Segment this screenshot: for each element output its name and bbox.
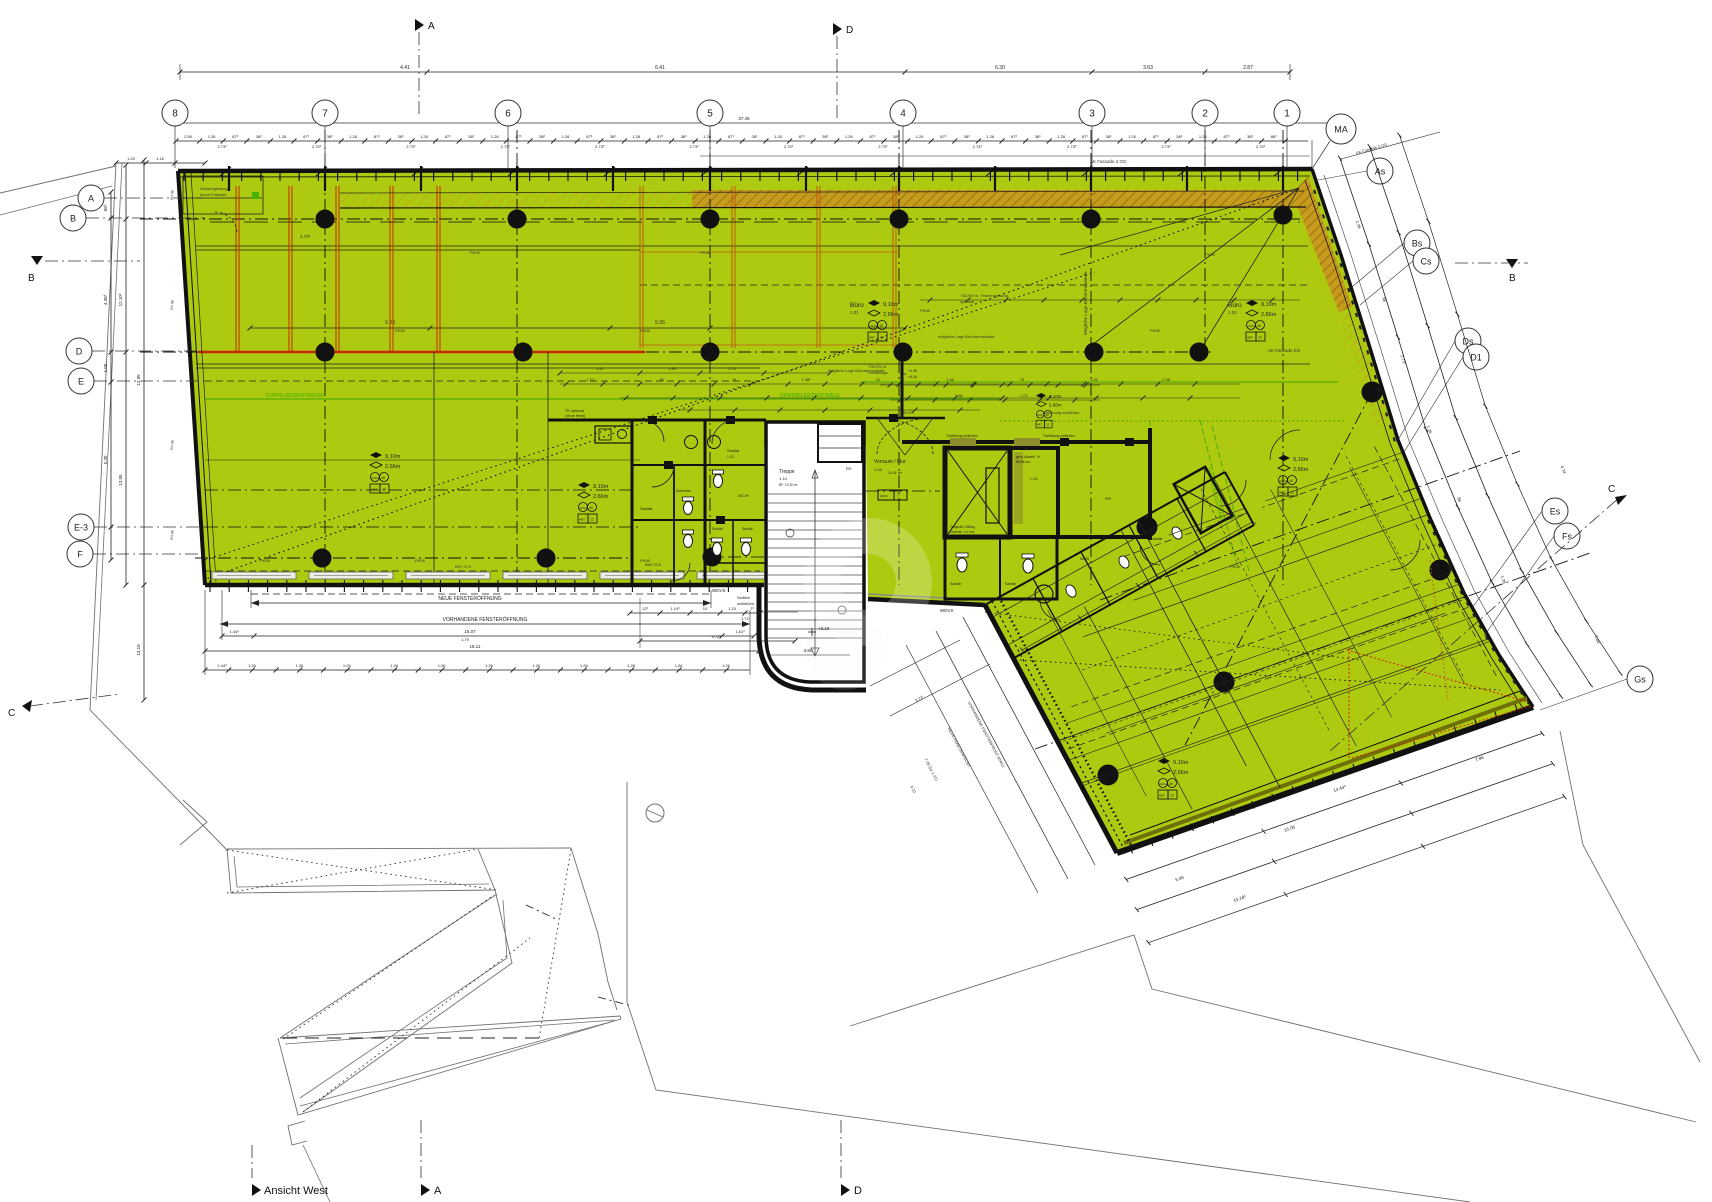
svg-text:86/36 cm: 86/36 cm: [1016, 460, 1030, 464]
svg-text:Ansicht West: Ansicht West: [264, 1185, 328, 1197]
svg-text:RS: RS: [846, 466, 852, 471]
svg-text:mögliche Lage Bürotrennwände: mögliche Lage Bürotrennwände: [938, 334, 995, 339]
svg-text:40: 40: [879, 324, 883, 328]
svg-text:87³: 87³: [445, 134, 451, 139]
svg-text:38³: 38³: [964, 134, 970, 139]
svg-text:Cs: Cs: [1421, 257, 1432, 267]
svg-text:ACKG: ACKG: [1279, 479, 1288, 483]
svg-text:T30-RS m. Festverglasung: T30-RS m. Festverglasung: [960, 293, 1008, 298]
svg-text:1.26: 1.26: [343, 663, 352, 668]
svg-text:12: 12: [590, 518, 594, 522]
svg-text:1.26: 1.26: [1199, 134, 1208, 139]
svg-text:D: D: [854, 1185, 862, 1197]
svg-text:WDVS: WDVS: [712, 588, 726, 593]
svg-text:12.10³: 12.10³: [118, 293, 123, 306]
svg-text:1.26: 1.26: [390, 663, 399, 668]
svg-text:PK08: PK08: [470, 250, 481, 255]
svg-text:40: 40: [589, 506, 593, 510]
svg-text:70: 70: [1020, 378, 1024, 382]
svg-text:1.73³: 1.73³: [1020, 394, 1029, 398]
svg-text:2,66m: 2,66m: [1293, 467, 1309, 473]
svg-text:1.02: 1.02: [1090, 378, 1097, 382]
svg-text:87³: 87³: [586, 134, 592, 139]
svg-text:87³: 87³: [728, 134, 734, 139]
svg-text:87³: 87³: [303, 134, 309, 139]
svg-text:1.44³: 1.44³: [229, 629, 239, 634]
svg-text:2.87: 2.87: [1243, 65, 1253, 71]
svg-text:3.63: 3.63: [1143, 65, 1153, 71]
svg-text:F: F: [77, 550, 83, 560]
svg-text:Sanitär: Sanitär: [1040, 596, 1053, 601]
svg-text:2.73³: 2.73³: [312, 144, 322, 149]
svg-text:4: 4: [900, 109, 906, 120]
svg-text:2,66m: 2,66m: [385, 464, 401, 470]
svg-text:12: 12: [382, 488, 386, 492]
svg-text:1.72: 1.72: [741, 616, 750, 621]
svg-text:T30-RS m.: T30-RS m.: [868, 364, 887, 369]
svg-text:+2.19: +2.19: [818, 626, 830, 631]
svg-text:87³: 87³: [232, 134, 238, 139]
svg-text:10: 10: [703, 606, 708, 611]
svg-text:12: 12: [1258, 336, 1262, 340]
svg-text:TK optional: TK optional: [565, 409, 584, 413]
svg-text:12³: 12³: [642, 606, 648, 611]
svg-text:3: 3: [1089, 109, 1095, 120]
svg-text:1.26: 1.26: [1057, 134, 1066, 139]
svg-text:1.15: 1.15: [728, 606, 737, 611]
svg-text:Sanitär: Sanitär: [950, 582, 962, 586]
svg-text:Schleuse: Schleuse: [676, 489, 691, 493]
svg-text:9,10m: 9,10m: [1261, 302, 1277, 308]
svg-text:(ohne Herd): (ohne Herd): [565, 414, 586, 418]
svg-text:1.26: 1.26: [491, 134, 500, 139]
svg-text:38³: 38³: [539, 134, 545, 139]
svg-text:Gs: Gs: [1634, 675, 1646, 685]
svg-text:86³: 86³: [1271, 134, 1277, 139]
svg-text:ACKG: ACKG: [1159, 782, 1168, 786]
svg-text:21: 21: [876, 378, 880, 382]
svg-text:AK Fassade 2.OG: AK Fassade 2.OG: [1090, 159, 1127, 164]
svg-text:15.07: 15.07: [464, 629, 476, 634]
svg-text:1.14: 1.14: [779, 476, 788, 481]
svg-text:1.26: 1.26: [296, 663, 305, 668]
svg-text:2.73³: 2.73³: [689, 144, 699, 149]
svg-text:1.03: 1.03: [874, 467, 883, 472]
svg-text:7: 7: [897, 494, 899, 498]
svg-text:PH 96: PH 96: [170, 190, 175, 200]
svg-text:90: 90: [660, 378, 664, 382]
svg-text:40: 40: [381, 476, 385, 480]
svg-text:schließen: schließen: [737, 601, 754, 606]
svg-text:ACKG: ACKG: [579, 506, 588, 510]
svg-text:BrH 72.5: BrH 72.5: [645, 562, 662, 567]
svg-text:ACKG: ACKG: [869, 324, 878, 328]
svg-text:1.26: 1.26: [533, 663, 542, 668]
svg-text:1.01: 1.01: [850, 310, 859, 315]
svg-text:MA: MA: [1334, 125, 1348, 135]
svg-text:HB10: HB10: [880, 494, 888, 498]
svg-text:Türöffnung schließen: Türöffnung schließen: [946, 434, 978, 438]
svg-text:PK08: PK08: [700, 250, 711, 255]
svg-text:2.08: 2.08: [1162, 378, 1169, 382]
svg-text:38³: 38³: [1176, 134, 1182, 139]
svg-text:F90: F90: [1105, 497, 1111, 501]
svg-text:66³: 66³: [103, 204, 108, 211]
svg-text:2,66m: 2,66m: [1049, 403, 1062, 408]
svg-text:2.73³: 2.73³: [217, 144, 227, 149]
svg-text:1.26: 1.26: [248, 663, 257, 668]
svg-text:38³: 38³: [681, 134, 687, 139]
svg-text:Seitlich: Seitlich: [737, 595, 750, 600]
svg-text:6: 6: [505, 109, 511, 120]
svg-text:87³: 87³: [940, 134, 946, 139]
svg-text:13.05: 13.05: [118, 474, 123, 486]
svg-text:ACKG: ACKG: [371, 476, 380, 480]
svg-text:1.15³: 1.15³: [1030, 477, 1038, 481]
svg-text:7: 7: [322, 109, 328, 120]
svg-text:1.70: 1.70: [586, 378, 593, 382]
svg-text:87³: 87³: [516, 134, 522, 139]
svg-text:PK08: PK08: [395, 328, 406, 333]
svg-text:87³: 87³: [1082, 134, 1088, 139]
svg-text:1.26: 1.26: [485, 663, 494, 668]
svg-text:PH 96: PH 96: [170, 530, 175, 540]
svg-text:C: C: [8, 708, 15, 719]
svg-text:1.38³: 1.38³: [802, 378, 811, 382]
svg-text:87³: 87³: [374, 134, 380, 139]
svg-text:VORHANDENE FENSTERÖFFNUNG: VORHANDENE FENSTERÖFFNUNG: [443, 616, 528, 623]
svg-text:40: 40: [1257, 324, 1261, 328]
svg-text:Bs: Bs: [1412, 239, 1423, 249]
svg-text:6.30: 6.30: [995, 65, 1005, 71]
svg-text:Es: Es: [1550, 507, 1561, 517]
svg-text:12: 12: [1170, 794, 1174, 798]
svg-text:2,66m: 2,66m: [1173, 770, 1189, 776]
svg-text:D: D: [76, 347, 83, 357]
svg-text:WC/H: WC/H: [738, 493, 749, 498]
svg-text:A: A: [434, 1185, 442, 1197]
svg-text:1.26: 1.26: [627, 663, 636, 668]
svg-text:1.25: 1.25: [127, 156, 136, 161]
svg-text:2.73³: 2.73³: [1161, 144, 1171, 149]
svg-text:9,10m: 9,10m: [385, 454, 401, 460]
svg-text:1.26: 1.26: [675, 663, 684, 668]
svg-text:T30-RS: T30-RS: [900, 410, 914, 415]
svg-text:1.26: 1.26: [438, 663, 447, 668]
svg-text:3.80: 3.80: [804, 648, 813, 653]
svg-text:38³: 38³: [752, 134, 758, 139]
svg-text:2.73³: 2.73³: [501, 144, 511, 149]
svg-text:durch Fassade: durch Fassade: [200, 192, 227, 197]
svg-text:38³: 38³: [822, 134, 828, 139]
svg-text:1.26: 1.26: [562, 134, 571, 139]
svg-text:PK08: PK08: [415, 558, 426, 563]
svg-text:HBT: HBT: [1247, 336, 1253, 340]
svg-text:2: 2: [1202, 109, 1208, 120]
svg-text:AK Fassade EG: AK Fassade EG: [1268, 348, 1301, 353]
svg-text:WDVS: WDVS: [940, 608, 954, 613]
svg-text:1.02: 1.02: [1228, 310, 1237, 315]
svg-text:4.70²: 4.70²: [300, 234, 311, 239]
svg-text:DOPPELBODENTRASSE: DOPPELBODENTRASSE: [266, 393, 325, 399]
svg-text:1: 1: [1284, 109, 1290, 120]
svg-text:1.45: 1.45: [946, 378, 953, 382]
svg-text:14.41 m²: 14.41 m²: [888, 471, 903, 475]
svg-text:E-3: E-3: [74, 523, 88, 533]
svg-text:NEUE FENSTERÖFFNUNG: NEUE FENSTERÖFFNUNG: [438, 595, 501, 602]
svg-text:2,66m: 2,66m: [1261, 312, 1277, 318]
svg-text:2.73³: 2.73³: [973, 144, 983, 149]
svg-text:2,66m: 2,66m: [593, 494, 609, 500]
svg-text:Festanlage: Festanlage: [868, 370, 889, 375]
svg-text:10: 10: [732, 378, 736, 382]
svg-text:1.00: 1.00: [103, 363, 108, 372]
svg-text:2.41: 2.41: [596, 367, 603, 371]
svg-text:1.26: 1.26: [580, 663, 589, 668]
svg-text:38³: 38³: [327, 134, 333, 139]
svg-text:Treppe: Treppe: [779, 469, 795, 475]
svg-text:2.73³: 2.73³: [878, 144, 888, 149]
svg-text:1.26: 1.26: [916, 134, 925, 139]
svg-text:1.26: 1.26: [279, 134, 288, 139]
svg-text:1.14³: 1.14³: [670, 606, 680, 611]
svg-text:Sanitär: Sanitär: [712, 527, 724, 531]
svg-text:40: 40: [1289, 479, 1293, 483]
svg-text:Geschw. 1.0 m/s: Geschw. 1.0 m/s: [950, 530, 975, 534]
svg-text:Vorraum / Flur: Vorraum / Flur: [874, 459, 906, 465]
svg-text:3.72³: 3.72³: [711, 634, 721, 639]
svg-text:Sanitär: Sanitär: [640, 506, 653, 511]
svg-text:D: D: [846, 25, 853, 36]
svg-text:BrH 72.5: BrH 72.5: [455, 564, 472, 569]
svg-text:optional: optional: [960, 299, 974, 304]
svg-text:1.61³: 1.61³: [735, 629, 745, 634]
svg-text:9,10m: 9,10m: [1293, 457, 1309, 463]
svg-text:C: C: [1608, 484, 1615, 495]
svg-text:2.73³: 2.73³: [784, 144, 794, 149]
svg-text:1.90: 1.90: [668, 367, 675, 371]
svg-text:87³: 87³: [799, 134, 805, 139]
svg-text:37.45: 37.45: [738, 116, 750, 121]
svg-text:87³: 87³: [870, 134, 876, 139]
svg-text:1.26: 1.26: [633, 134, 642, 139]
svg-text:9,10m: 9,10m: [593, 484, 609, 490]
svg-text:1.26: 1.26: [774, 134, 783, 139]
svg-text:1.13: 1.13: [727, 455, 734, 459]
svg-text:HBT: HBT: [1159, 794, 1165, 798]
svg-text:As: As: [1375, 167, 1386, 177]
svg-text:B: B: [1509, 273, 1516, 284]
svg-text:87³: 87³: [657, 134, 663, 139]
svg-text:5.30: 5.30: [103, 455, 108, 464]
svg-text:Büro: Büro: [1228, 302, 1242, 309]
svg-text:38³: 38³: [1106, 134, 1112, 139]
svg-text:HBT: HBT: [579, 518, 585, 522]
svg-text:1.26: 1.26: [703, 134, 712, 139]
svg-text:87³: 87³: [1153, 134, 1159, 139]
svg-text:B: B: [70, 214, 76, 224]
svg-text:9,10m: 9,10m: [883, 302, 899, 308]
svg-text:1.26: 1.26: [349, 134, 358, 139]
svg-text:38³: 38³: [398, 134, 404, 139]
svg-text:HBT: HBT: [1279, 491, 1285, 495]
svg-text:PK08: PK08: [1230, 564, 1241, 569]
svg-text:PH 96: PH 96: [170, 300, 175, 310]
svg-text:A: A: [88, 194, 94, 204]
svg-text:5.96: 5.96: [655, 320, 665, 326]
svg-text:PK08: PK08: [260, 558, 271, 563]
svg-text:5: 5: [707, 109, 713, 120]
svg-text:PK08: PK08: [640, 328, 651, 333]
svg-text:PK08: PK08: [920, 308, 931, 313]
svg-text:+4.45: +4.45: [908, 369, 917, 373]
svg-text:Sanitär: Sanitär: [742, 527, 754, 531]
svg-text:40: 40: [1169, 782, 1173, 786]
svg-text:Fs: Fs: [1562, 532, 1572, 542]
svg-text:Sanitär: Sanitär: [727, 448, 740, 453]
svg-text:Sanitär: Sanitär: [1005, 582, 1017, 586]
svg-text:38³: 38³: [1247, 134, 1253, 139]
svg-text:Mögliche Lage Bürotrennwände: Mögliche Lage Bürotrennwände: [1083, 271, 1088, 335]
svg-text:18.11: 18.11: [470, 644, 481, 649]
svg-text:ACKG: ACKG: [1247, 324, 1256, 328]
svg-text:38³: 38³: [893, 134, 899, 139]
svg-text:12: 12: [1046, 423, 1050, 427]
svg-text:4.36³: 4.36³: [103, 294, 108, 305]
svg-text:+4.34: +4.34: [908, 375, 917, 379]
svg-text:12: 12: [880, 336, 884, 340]
svg-text:Büro: Büro: [850, 302, 864, 309]
svg-text:HBT: HBT: [1037, 423, 1043, 427]
svg-text:gem. Abstell: 7x: gem. Abstell: 7x: [1016, 455, 1040, 459]
svg-text:38³: 38³: [1035, 134, 1041, 139]
svg-text:2.73³: 2.73³: [1256, 144, 1266, 149]
svg-text:A: A: [428, 21, 435, 32]
svg-text:B: B: [28, 273, 35, 284]
svg-text:1.26: 1.26: [1128, 134, 1137, 139]
svg-text:8: 8: [172, 109, 178, 120]
svg-text:13.10: 13.10: [136, 644, 141, 656]
svg-text:2,66m: 2,66m: [883, 312, 899, 318]
svg-text:HBT: HBT: [371, 488, 377, 492]
svg-text:1.79: 1.79: [461, 637, 470, 642]
svg-text:1.16: 1.16: [156, 156, 165, 161]
svg-text:Türöffnung schließen: Türöffnung schließen: [1043, 434, 1075, 438]
svg-text:1.26: 1.26: [208, 134, 217, 139]
svg-text:2.56: 2.56: [184, 134, 193, 139]
svg-text:1.26: 1.26: [420, 134, 429, 139]
svg-text:1.44³: 1.44³: [217, 663, 227, 668]
svg-text:38³: 38³: [256, 134, 262, 139]
svg-text:1.46³: 1.46³: [955, 394, 964, 398]
svg-text:PH 96: PH 96: [170, 440, 175, 450]
svg-text:12.95: 12.95: [136, 374, 141, 386]
svg-text:2.73³: 2.73³: [595, 144, 605, 149]
svg-text:Deckengleitung: Deckengleitung: [200, 186, 228, 191]
svg-text:1.70: 1.70: [728, 367, 735, 371]
svg-text:4.41: 4.41: [400, 65, 410, 71]
svg-text:87³: 87³: [1224, 134, 1230, 139]
svg-text:PK08: PK08: [1205, 252, 1216, 257]
svg-text:Tragkraft 1250kg: Tragkraft 1250kg: [950, 525, 975, 529]
svg-text:87³: 87³: [1011, 134, 1017, 139]
svg-text:1.26: 1.26: [987, 134, 996, 139]
svg-text:1.26: 1.26: [722, 663, 731, 668]
svg-text:PK08: PK08: [1150, 328, 1161, 333]
svg-text:Sanitär: Sanitär: [1150, 536, 1163, 541]
svg-text:BF: 19.30 m²: BF: 19.30 m²: [779, 483, 797, 487]
svg-text:38³: 38³: [610, 134, 616, 139]
svg-text:HBT: HBT: [869, 336, 875, 340]
svg-text:1.26: 1.26: [845, 134, 854, 139]
svg-text:9,10m: 9,10m: [1173, 760, 1189, 766]
svg-text:38³: 38³: [468, 134, 474, 139]
svg-text:6.41: 6.41: [655, 65, 665, 71]
svg-text:2.73³: 2.73³: [1067, 144, 1077, 149]
svg-text:2.73³: 2.73³: [406, 144, 416, 149]
svg-text:Türöffnung schließen: Türöffnung schließen: [1042, 410, 1080, 415]
svg-text:E: E: [78, 377, 84, 387]
